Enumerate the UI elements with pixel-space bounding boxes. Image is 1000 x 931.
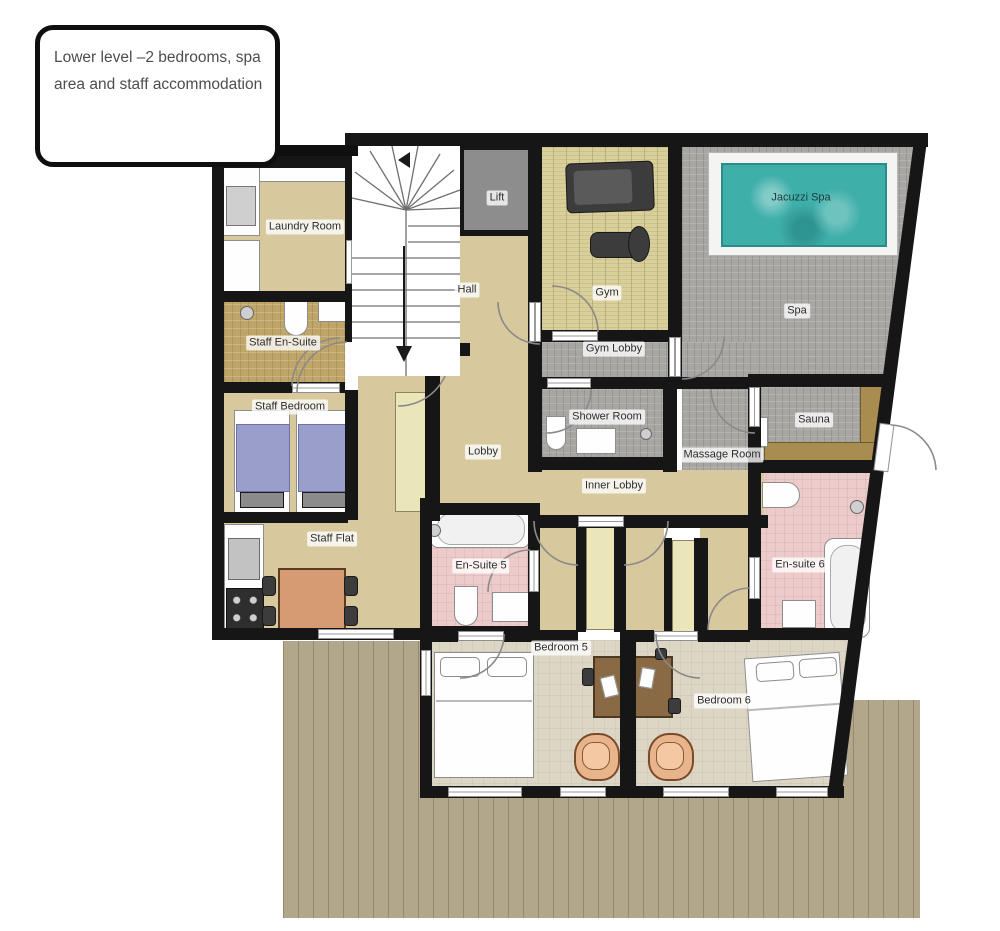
room-label-hall: Hall	[455, 283, 480, 298]
room-label-ensuite5: En-Suite 5	[452, 559, 509, 574]
door-opening	[458, 631, 504, 641]
window	[776, 787, 828, 797]
door-opening	[529, 302, 541, 342]
door-opening	[552, 331, 598, 341]
ensuite5-sink	[492, 592, 532, 622]
bed6-pillow	[755, 661, 794, 683]
bed5-pillow	[440, 657, 480, 677]
door-opening	[654, 631, 698, 641]
deck-terrace-left	[283, 641, 433, 918]
floor-inner-lobby	[533, 470, 768, 515]
single-bed-2-blanket	[298, 424, 352, 492]
washing-machine	[222, 240, 260, 298]
desk-chair	[582, 668, 594, 686]
bed5-pillow	[487, 657, 527, 677]
wall-left	[212, 155, 224, 640]
wall-shower-bottom	[528, 457, 677, 470]
desk-chair	[655, 648, 667, 660]
wall-bedrooms-top-c	[626, 630, 654, 642]
room-label-ensuite6: En-suite 6	[772, 558, 828, 573]
dining-chair	[344, 576, 358, 596]
wall	[614, 520, 626, 632]
kitchen-stove	[226, 588, 264, 630]
window	[318, 629, 394, 639]
window	[421, 650, 431, 696]
door-opening	[749, 387, 760, 427]
dining-chair	[262, 606, 276, 626]
room-label-staff-ensuite: Staff En-Suite	[246, 336, 320, 351]
window	[448, 787, 522, 797]
room-label-lobby: Lobby	[465, 445, 501, 460]
dining-chair	[262, 576, 276, 596]
wall-bedblock-left	[420, 498, 432, 798]
room-label-massage-room: Massage Room	[680, 448, 763, 463]
ensuite5-toilet	[454, 586, 478, 626]
wall-staffensuite-top	[212, 291, 358, 302]
exercise-bike-wheel	[628, 226, 650, 262]
door-arc	[891, 425, 936, 470]
wall-lobby-closet	[425, 343, 440, 521]
room-label-laundry: Laundry Room	[266, 220, 344, 235]
shower-room-shower-head	[640, 428, 652, 440]
floor-plan: Laundry Room Lift Gym Jacuzzi Spa Spa Ha…	[0, 0, 1000, 931]
shower-room-toilet	[546, 416, 566, 450]
wall-sauna-bottom	[748, 460, 880, 473]
door-opening	[345, 342, 358, 390]
staff-ensuite-shower-head	[240, 306, 254, 320]
wall-sauna-top	[748, 374, 888, 387]
bed5-duvet-line	[436, 700, 532, 702]
ensuite6-shower-head	[850, 500, 864, 514]
room-label-inner-lobby: Inner Lobby	[582, 479, 646, 494]
door-opening	[292, 383, 340, 393]
room-label-bedroom6: Bedroom 6	[694, 694, 754, 709]
desk-chair	[668, 698, 681, 714]
room-label-staff-bedroom: Staff Bedroom	[252, 400, 328, 415]
single-bed-1-blanket	[236, 424, 290, 492]
wall	[664, 538, 672, 634]
wall-bedroom-divider	[620, 632, 636, 790]
door-opening	[578, 516, 624, 527]
floor-corridor-bed5	[540, 515, 578, 632]
bed6-pillow	[798, 657, 837, 679]
single-bed-1-foot	[240, 492, 284, 508]
wall	[576, 520, 586, 632]
room-label-gym: Gym	[592, 286, 621, 301]
callout-text: Lower level –2 bedrooms, spa area and st…	[54, 49, 262, 93]
wall-ensuite6-bottom	[748, 628, 852, 640]
door-opening	[529, 550, 539, 592]
wall-ensuite5-top	[420, 503, 538, 515]
ensuite5-bath-inner	[437, 513, 525, 545]
floor-corridor-bed6	[626, 515, 664, 632]
door-opening	[669, 337, 681, 377]
armchair-cushion	[656, 742, 684, 770]
wall-staffbedroom-bottom	[212, 512, 348, 523]
single-bed-2-foot	[302, 492, 346, 508]
armchair-cushion	[582, 742, 610, 770]
wall-bedrooms-top-a	[428, 630, 458, 642]
wardrobe-corridor-b	[672, 540, 696, 634]
door-opening	[547, 378, 591, 388]
room-label-spa: Spa	[784, 304, 810, 319]
wardrobe-lobby	[395, 392, 427, 512]
dining-chair	[344, 606, 358, 626]
ensuite6-sink	[782, 600, 816, 628]
ensuite6-toilet	[762, 482, 800, 508]
callout-box: Lower level –2 bedrooms, spa area and st…	[35, 25, 280, 167]
kitchen-sink	[228, 538, 260, 580]
door-opening	[749, 557, 760, 599]
floor-lobby	[358, 341, 533, 521]
wall-innerlobby-bottom	[533, 515, 768, 528]
room-label-sauna: Sauna	[795, 413, 833, 428]
room-label-lift: Lift	[487, 191, 508, 206]
window	[346, 240, 358, 284]
staff-ensuite-toilet	[284, 298, 308, 336]
room-label-bedroom5: Bedroom 5	[531, 641, 591, 656]
room-label-jacuzzi: Jacuzzi Spa	[768, 191, 833, 206]
shower-room-sink	[576, 428, 616, 454]
window	[663, 787, 729, 797]
wall-bedrooms-top-d	[698, 630, 750, 642]
ensuite6-bath-inner	[830, 545, 866, 633]
wall-staffbedroom-right	[345, 390, 358, 520]
floor-gym-lobby	[540, 342, 755, 377]
room-label-shower-room: Shower Room	[569, 410, 645, 425]
wall-gym-bottom	[528, 330, 680, 342]
wall-top-main	[345, 133, 928, 147]
wall	[694, 538, 708, 634]
wardrobe-corridor-a	[586, 524, 616, 630]
window	[560, 787, 606, 797]
room-label-staff-flat: Staff Flat	[307, 532, 357, 547]
room-label-gym-lobby: Gym Lobby	[583, 342, 645, 357]
treadmill-belt	[573, 169, 632, 205]
laundry-sink	[226, 186, 256, 226]
sauna-bench-right	[860, 384, 886, 448]
door-opening	[398, 344, 452, 355]
